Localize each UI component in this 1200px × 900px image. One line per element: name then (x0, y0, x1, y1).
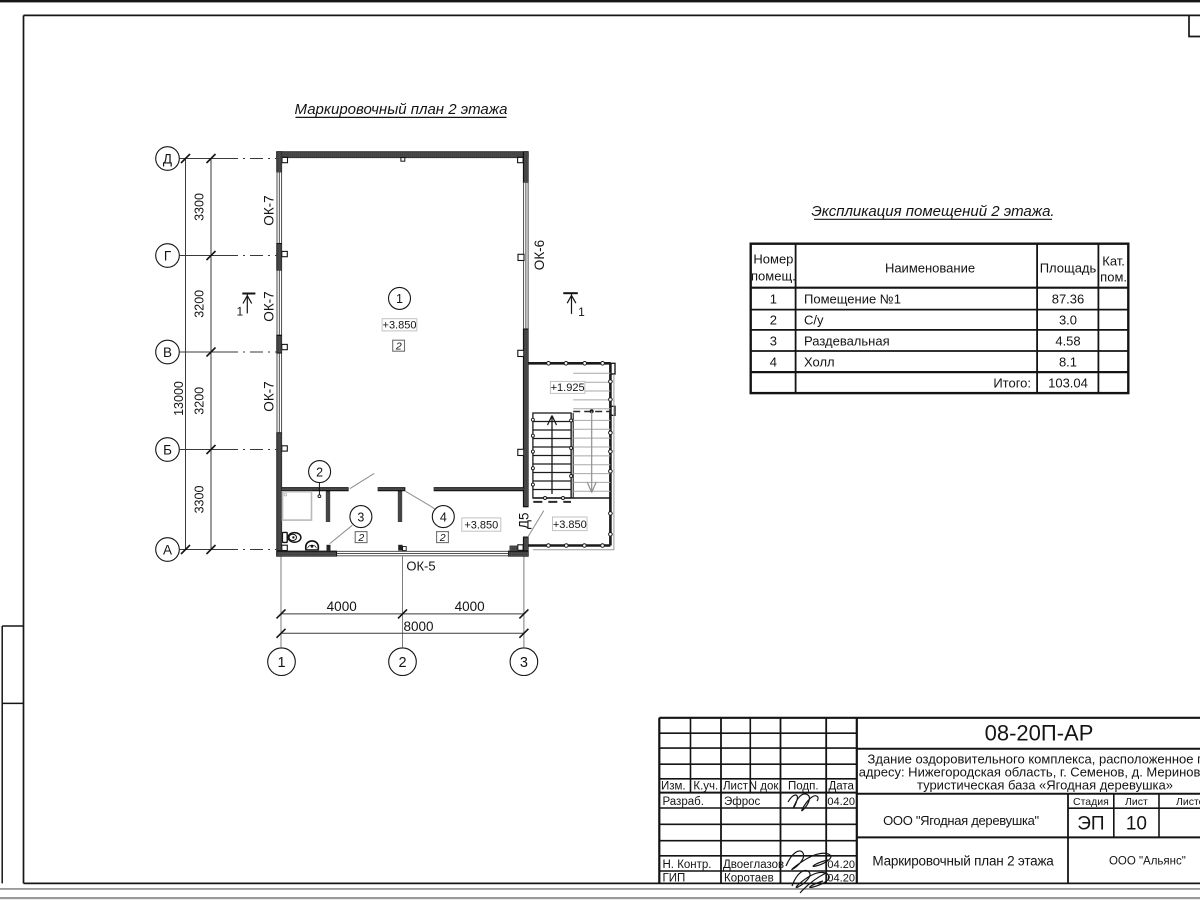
svg-text:помещ.: помещ. (751, 269, 796, 284)
svg-text:2: 2 (395, 340, 402, 352)
svg-text:4.58: 4.58 (1055, 334, 1080, 349)
svg-text:Двоеглазов: Двоеглазов (723, 859, 784, 871)
svg-text:1: 1 (277, 655, 285, 671)
svg-text:1: 1 (578, 305, 585, 319)
svg-text:3: 3 (520, 655, 528, 671)
svg-text:В: В (163, 345, 172, 360)
svg-text:ООО "Альянс": ООО "Альянс" (1109, 855, 1186, 867)
svg-text:Лист: Лист (1125, 796, 1148, 808)
svg-text:ОК-5: ОК-5 (406, 559, 435, 574)
svg-text:87.36: 87.36 (1052, 292, 1085, 307)
svg-text:3300: 3300 (193, 193, 207, 221)
svg-text:10: 10 (1126, 814, 1147, 835)
svg-text:Листов: Листов (1176, 796, 1200, 808)
svg-text:ООО "Ягодная деревушка": ООО "Ягодная деревушка" (883, 813, 1039, 828)
svg-text:04.20: 04.20 (827, 873, 855, 885)
svg-text:3: 3 (357, 510, 364, 524)
svg-text:Д: Д (163, 152, 172, 167)
svg-text:Стадия: Стадия (1073, 796, 1109, 808)
svg-text:3.0: 3.0 (1059, 313, 1077, 328)
svg-text:2: 2 (357, 532, 364, 544)
svg-text:ОК-7: ОК-7 (262, 195, 277, 225)
svg-text:Изм.: Изм. (661, 781, 686, 793)
svg-text:Помещение №1: Помещение №1 (804, 292, 901, 307)
svg-text:Коротаев: Коротаев (724, 873, 774, 885)
svg-text:1: 1 (396, 292, 403, 306)
svg-text:8.1: 8.1 (1059, 355, 1077, 370)
svg-text:Д5: Д5 (517, 512, 532, 529)
svg-text:3: 3 (770, 334, 777, 349)
svg-text:04.20: 04.20 (827, 796, 855, 808)
svg-text:4: 4 (440, 510, 447, 524)
svg-text:08-20П-АР: 08-20П-АР (985, 721, 1094, 746)
svg-text:Номер: Номер (753, 252, 793, 267)
svg-text:2: 2 (439, 532, 446, 544)
svg-text:3200: 3200 (193, 387, 207, 415)
svg-text:1: 1 (770, 292, 777, 307)
svg-text:3200: 3200 (193, 290, 207, 318)
svg-text:ГИП: ГИП (663, 873, 686, 885)
svg-text:13000: 13000 (172, 381, 186, 416)
svg-text:ОК-6: ОК-6 (532, 240, 547, 270)
svg-text:8000: 8000 (403, 619, 433, 634)
svg-text:+1.925: +1.925 (551, 382, 585, 394)
svg-text:3300: 3300 (193, 486, 207, 514)
svg-text:+3.850: +3.850 (464, 520, 498, 532)
svg-text:04.20: 04.20 (827, 859, 855, 871)
svg-text:N док.: N док. (749, 781, 782, 793)
svg-text:Кат.: Кат. (1102, 254, 1125, 269)
svg-text:ЭП: ЭП (1077, 814, 1104, 835)
svg-text:ОК-7: ОК-7 (262, 291, 277, 321)
svg-text:103.04: 103.04 (1048, 376, 1088, 391)
svg-text:2: 2 (316, 465, 323, 479)
svg-text:пом.: пом. (1100, 270, 1127, 285)
svg-text:Эфрос: Эфрос (724, 796, 761, 808)
svg-text:Наименование: Наименование (885, 261, 975, 276)
svg-text:Итого:: Итого: (993, 376, 1031, 391)
svg-text:А: А (163, 543, 172, 558)
svg-text:Г: Г (164, 249, 172, 264)
svg-text:Подп.: Подп. (788, 781, 819, 793)
svg-text:Разраб.: Разраб. (663, 796, 704, 808)
svg-text:Дата: Дата (828, 781, 854, 793)
svg-text:К.уч.: К.уч. (693, 781, 718, 793)
svg-text:Маркировочный план 2 этажа: Маркировочный план 2 этажа (872, 854, 1054, 869)
svg-text:2: 2 (398, 655, 406, 671)
svg-text:4: 4 (770, 355, 777, 370)
svg-text:Маркировочный план 2 этажа: Маркировочный план 2 этажа (295, 101, 508, 118)
svg-text:Экспликация помещений 2 этажа.: Экспликация помещений 2 этажа. (811, 203, 1054, 220)
svg-text:1: 1 (236, 305, 243, 319)
svg-text:ОК-7: ОК-7 (262, 381, 277, 411)
svg-text:Площадь: Площадь (1040, 261, 1097, 276)
svg-text:С/у: С/у (804, 313, 824, 328)
svg-text:Холл: Холл (804, 355, 835, 370)
svg-text:Н. Контр.: Н. Контр. (663, 859, 712, 871)
svg-text:Раздевальная: Раздевальная (804, 334, 890, 349)
svg-text:+3.850: +3.850 (553, 519, 587, 531)
svg-text:Б: Б (163, 443, 172, 458)
svg-text:туристическая база «Ягодная де: туристическая база «Ягодная деревушка» (917, 778, 1173, 793)
svg-text:4000: 4000 (327, 599, 357, 614)
svg-text:+3.850: +3.850 (383, 320, 417, 332)
svg-text:4000: 4000 (455, 599, 485, 614)
svg-text:2: 2 (770, 313, 777, 328)
svg-text:Лист: Лист (723, 781, 749, 793)
